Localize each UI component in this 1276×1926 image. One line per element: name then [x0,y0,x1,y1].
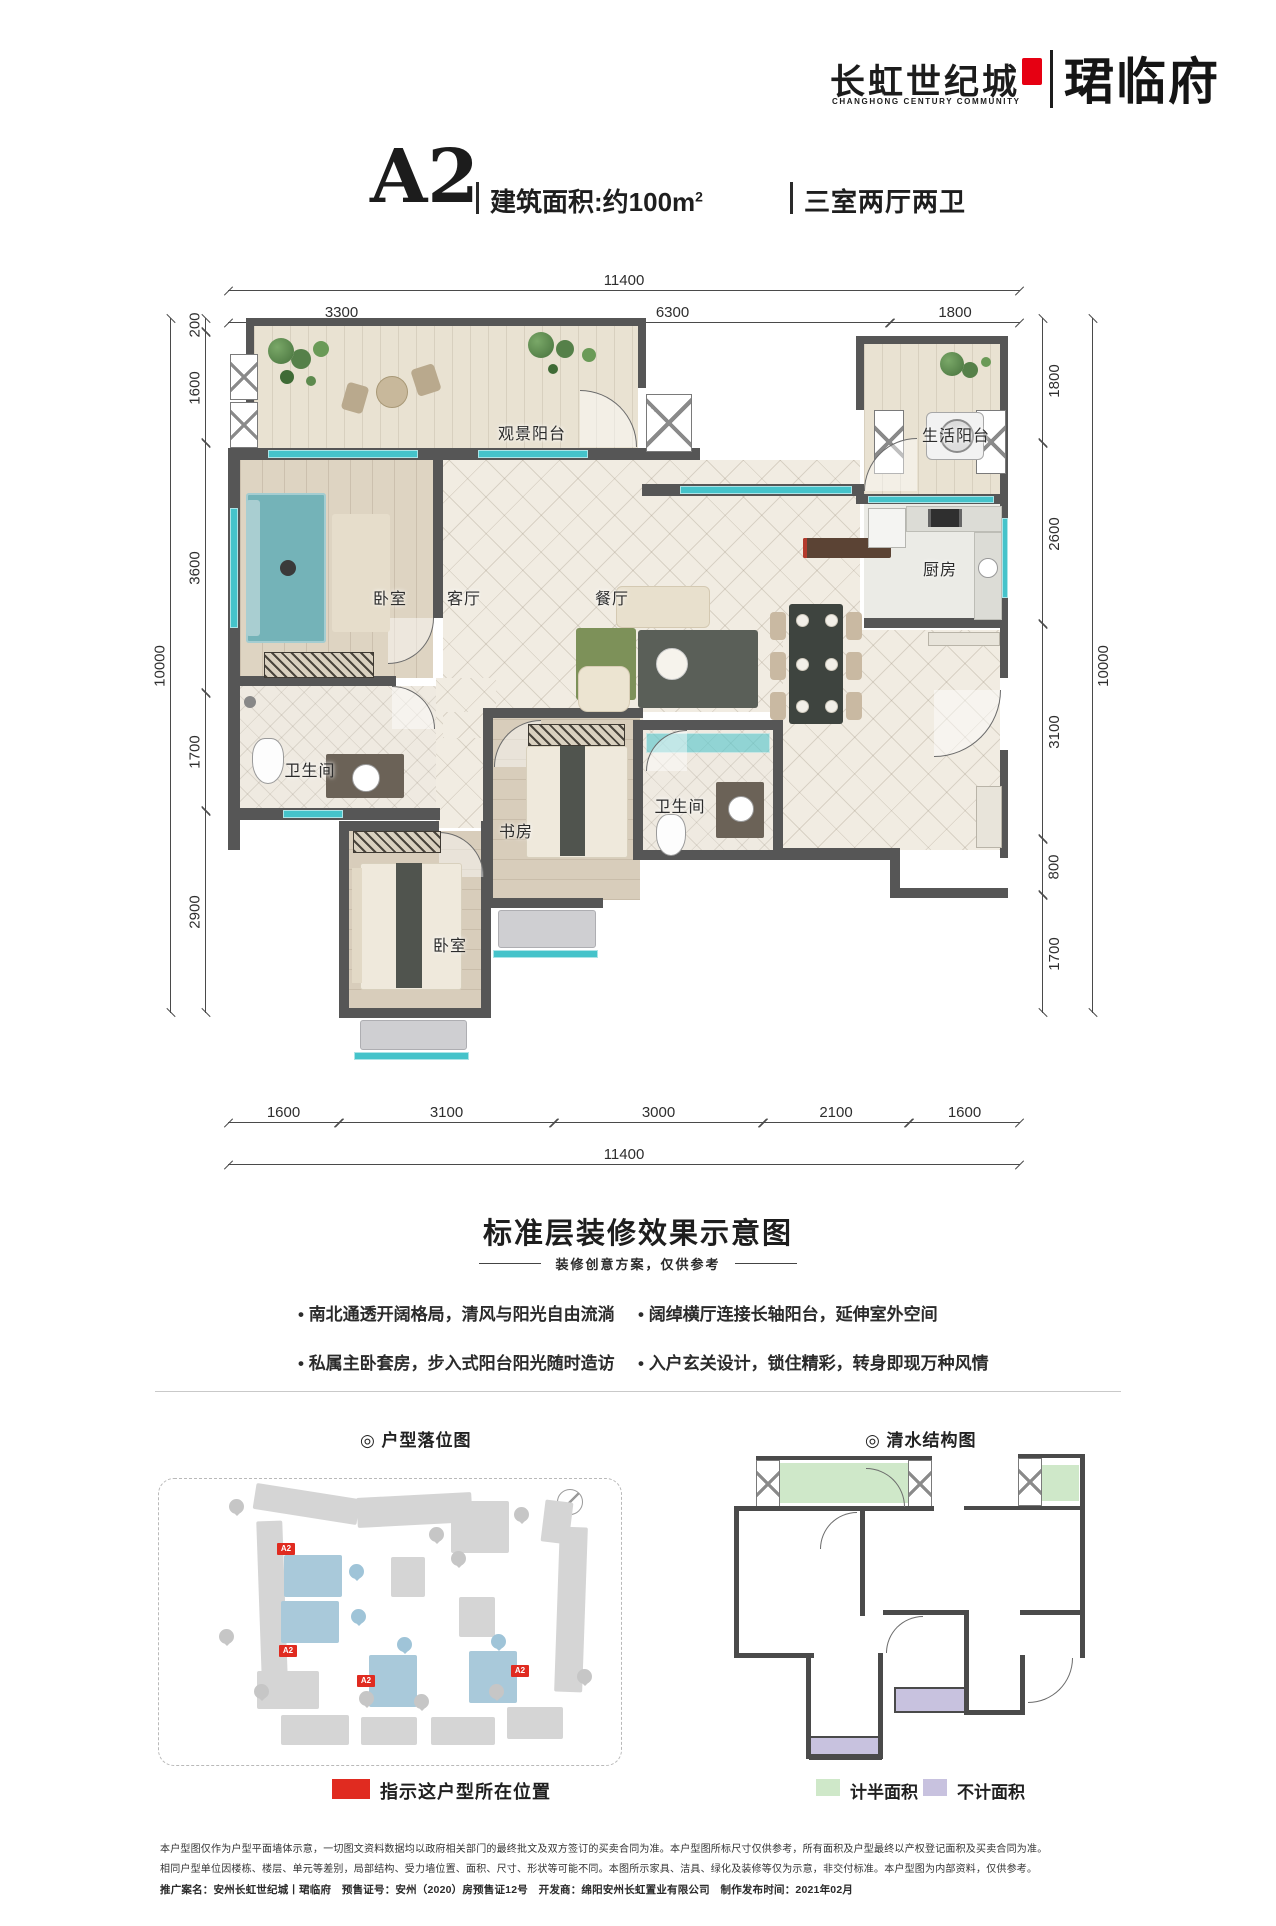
building-pin [429,1527,444,1542]
pillow [246,500,260,636]
bullet-dot: • [638,1354,649,1373]
building [281,1715,349,1745]
sub-line [479,1263,541,1265]
wall [633,720,643,860]
unit-area-sup: 2 [695,188,703,204]
cabinet [928,632,1000,646]
building-pin-highlight [351,1609,366,1624]
chair [846,652,862,680]
wall [890,888,1008,898]
rug [332,514,390,632]
bullet-text: 入户玄关设计，锁住精彩，转身即现万种风情 [649,1354,989,1373]
dim-bottom-seg-0: 1600 [228,1122,339,1123]
disclaimer-line-3: 推广案名：安州长虹世纪城丨珺临府 预售证号：安州（2020）房预售证12号 开发… [160,1882,1122,1897]
building-highlighted [369,1655,417,1707]
building-pin [359,1691,374,1706]
chair [770,612,786,640]
bullet-text: 私属主卧套房，步入式阳台阳光随时造访 [309,1354,615,1373]
bay-bench [360,1020,467,1050]
title-divider [476,182,479,214]
structure-legend-half: 计半面积 [850,1778,918,1803]
title-divider-2 [790,182,793,214]
building [459,1597,495,1637]
room-label-dining: 餐厅 [595,585,629,609]
wall [638,326,646,388]
dim-right-seg-3: 800 [1042,839,1043,895]
dim-bottom-seg-1: 3100 [339,1122,554,1123]
plate [796,700,809,713]
sink-icon [352,764,380,792]
window [1002,518,1008,598]
column-icon [230,402,258,448]
window [230,508,238,628]
balcony-table-icon [376,376,408,408]
bay-bench [498,910,596,948]
dim-bottom-seg-2: 3000 [554,1122,763,1123]
plate [825,658,838,671]
window [478,450,588,458]
unit-location-tag: A2 [357,1675,375,1687]
brand-header: 长虹世纪城 CHANGHONG CENTURY COMMUNITY 珺临府 [830,50,1230,120]
wall [483,708,493,908]
wall [433,460,443,618]
wall [633,850,783,860]
headboard [352,868,362,983]
building-pin-highlight [397,1637,412,1652]
chair [770,692,786,720]
room-label-bath-master: 卫生间 [284,757,335,781]
unit-rooms: 三室两厅两卫 [804,182,966,219]
building [391,1557,425,1597]
room-label-view-balcony: 观景阳台 [498,420,566,444]
cabinet [976,786,1002,848]
wall [806,1653,811,1758]
coffee-table-icon [656,648,688,680]
door-arc [886,1616,923,1653]
unit-location-tag: A2 [277,1543,295,1555]
window [493,950,598,958]
chair [846,612,862,640]
brochure-page: 长虹世纪城 CHANGHONG CENTURY COMMUNITY 珺临府 A2… [0,0,1276,1926]
dim-right-seg-0: 1800 [1042,318,1043,443]
bullet-dot: • [638,1305,649,1324]
unit-area: 建筑面积:约100m2 [490,182,703,219]
building-pin [451,1551,466,1566]
disclaimer-line-2: 相同户型单位因楼栋、楼层、单元等差别，局部结构、受力墙位置、面积、尺寸、形状等可… [160,1860,1122,1875]
wall [878,1653,883,1759]
wall [633,720,783,730]
section-divider [155,1391,1121,1392]
wall [783,848,898,860]
effect-heading: 标准层装修效果示意图 [0,1210,1276,1252]
dim-bottom-seg-3: 2100 [763,1122,909,1123]
legend-red-swatch [332,1779,370,1799]
wall [1020,1655,1025,1715]
bullet-item: • 南北通透开阔格局，清风与阳光自由流淌 [298,1300,615,1325]
dim-top-total: 11400 [228,290,1020,291]
wall [756,1456,932,1460]
effect-subheading: 装修创意方案，仅供参考 [555,1254,720,1273]
wardrobe-icon [353,831,441,853]
wall [856,336,1008,344]
bullet-text: 阔绰横厅连接长轴阳台，延伸室外空间 [649,1305,938,1324]
window [283,810,343,818]
building [431,1717,495,1745]
wall [856,344,864,410]
unit-location-tag: A2 [279,1645,297,1657]
legend-green-swatch [816,1779,840,1796]
column-icon [756,1460,780,1508]
door-arc [820,1512,857,1549]
brand-name-en: CHANGHONG CENTURY COMMUNITY [832,97,1021,106]
dim-bottom-seg-4: 1600 [909,1122,1020,1123]
building-pin-highlight [349,1564,364,1579]
bullet-item: • 入户玄关设计，锁住精彩，转身即现万种风情 [638,1349,989,1374]
bullet-dot: • [298,1305,309,1324]
window [868,496,994,503]
column-icon [908,1460,932,1508]
dim-left-seg-0: 200 [205,318,206,332]
building-pin [514,1507,529,1522]
dim-bottom-total: 11400 [228,1164,1020,1165]
room-label-kitchen: 厨房 [923,556,957,580]
room-label-study: 书房 [499,818,533,842]
building [554,1527,588,1693]
shower-icon [244,696,256,708]
wall [883,1610,968,1615]
headboard-icon [528,724,625,746]
building-pin [219,1629,234,1644]
toilet-icon [656,814,686,856]
window [268,450,418,458]
sink-icon [978,558,998,578]
wall [483,898,603,908]
dim-right-total: 10000 [1092,318,1093,1013]
building [361,1717,417,1745]
dim-left-seg-2: 3600 [205,443,206,693]
window [680,486,852,494]
floor-plan: 观景阳台 生活阳台 卧室 客厅 餐厅 厨房 卫生间 书房 卫生间 卧室 [228,318,1020,1088]
wall [964,1506,1084,1510]
structure-diagram [700,1450,1100,1770]
bullet-dot: • [298,1354,309,1373]
dim-left-seg-4: 2900 [205,811,206,1013]
disclaimer-line-1: 本户型图仅作为户型平面墙体示意，一切图文资料数据均以政府相关部门的最终批文及双方… [160,1840,1122,1855]
building-pin [489,1684,504,1699]
building-pin [229,1499,244,1514]
unit-title: A2 建筑面积:约100m2 三室两厅两卫 [370,140,1010,220]
structure-legend-excluded: 不计面积 [957,1778,1025,1803]
structure-map-title: ◎ 清水结构图 [865,1426,977,1451]
bed-runner [560,746,585,856]
wall [339,821,349,1018]
room-label-living: 客厅 [447,585,481,609]
chaise-icon [578,666,630,712]
wall [964,1610,969,1714]
plant-icon [528,332,554,358]
building-pin-highlight [491,1634,506,1649]
room-label-life-balcony: 生活阳台 [922,422,990,446]
brand-red-square-icon [1022,58,1042,85]
plate [825,614,838,627]
effect-subheading-row: 装修创意方案，仅供参考 [0,1254,1276,1273]
wall [246,318,646,326]
building [451,1501,509,1553]
room-label-bath-guest: 卫生间 [654,793,705,817]
project-name: 珺临府 [1064,42,1220,114]
bed-runner [396,863,422,988]
toilet-icon [252,738,284,784]
wall [339,1008,491,1018]
bullet-item: • 私属主卧套房，步入式阳台阳光随时造访 [298,1349,615,1374]
building [507,1707,563,1739]
bed-dot [280,560,296,576]
plant-icon [268,338,294,364]
building-pin [414,1694,429,1709]
dim-left-seg-1: 1600 [205,332,206,443]
building-highlighted [281,1601,339,1643]
plate [825,700,838,713]
unit-area-text: 建筑面积:约100m [490,187,695,217]
plant-icon [940,352,964,376]
sub-line [735,1263,797,1265]
room-label-bedroom-second: 卧室 [433,932,467,956]
column-icon [230,354,258,400]
building [253,1483,361,1525]
column-icon [1018,1458,1042,1506]
plate [796,658,809,671]
building-pin [577,1669,592,1684]
unit-code: A2 [370,140,479,214]
dim-left-seg-3: 1700 [205,693,206,811]
room-label-bedroom-master: 卧室 [373,585,407,609]
legend-purple-swatch [923,1779,947,1796]
location-map-title: ◎ 户型落位图 [360,1426,472,1451]
wall [734,1506,739,1658]
dim-right-seg-2: 3100 [1042,624,1043,839]
wall [964,1710,1024,1715]
wall [734,1653,814,1658]
half-area [1041,1465,1079,1501]
column-icon [646,394,692,452]
wardrobe-icon [264,652,374,678]
chair [770,652,786,680]
door-arc [1028,1658,1073,1703]
dim-left-total: 10000 [170,318,171,1013]
dim-right-seg-4: 1700 [1042,895,1043,1013]
wall [773,720,783,860]
fridge-icon [868,508,906,548]
chair [846,692,862,720]
building-pin [254,1684,269,1699]
bullet-item: • 阔绰横厅连接长轴阳台，延伸室外空间 [638,1300,938,1325]
location-legend-text: 指示这户型所在位置 [380,1778,551,1804]
bullet-text: 南北通透开阔格局，清风与阳光自由流淌 [309,1305,615,1324]
wall [806,1754,882,1759]
wall [339,821,439,831]
sink-icon [728,796,754,822]
stove-icon [928,509,962,527]
excluded-area [894,1687,968,1713]
dim-right-seg-1: 2600 [1042,443,1043,624]
unit-location-tag: A2 [511,1665,529,1677]
wall [1020,1610,1084,1615]
plate [796,614,809,627]
building-highlighted [284,1555,342,1597]
sofa-icon [616,586,710,628]
window [354,1052,469,1060]
wall [860,1506,865,1616]
wall [1080,1458,1085,1658]
location-map: A2 A2 A2 A2 [158,1478,622,1766]
brand-divider [1050,50,1053,108]
wall [1018,1454,1085,1458]
